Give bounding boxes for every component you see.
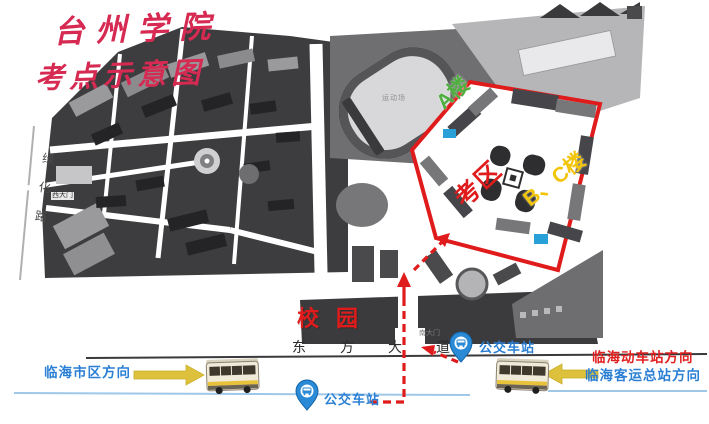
bus-stop-label-bottom: 公交车站 xyxy=(324,393,380,407)
exam-site-map: 台州学院 考点示意图 绿化路 西大门 运动场 南大门 A楼 B、C楼 考区 校园… xyxy=(0,0,709,424)
direction-arrow-left xyxy=(134,365,204,385)
map-title: 台州学院 考点示意图 xyxy=(32,1,223,98)
direction-label-train-station: 临海动车站方向 xyxy=(592,351,694,366)
bus-image-left xyxy=(206,358,259,394)
south-gate-label: 南大门 xyxy=(419,330,440,338)
map-title-line1: 台州学院 xyxy=(52,1,221,52)
west-gate-label: 西大门 xyxy=(51,192,74,200)
bus-stop-pin-bottom xyxy=(296,380,318,410)
bus-stop-label-right: 公交车站 xyxy=(479,341,535,355)
map-title-line2: 考点示意图 xyxy=(34,49,223,98)
bus-image-right xyxy=(496,358,549,394)
stadium-label: 运动场 xyxy=(382,95,406,103)
direction-label-bus-terminal: 临海客运总站方向 xyxy=(585,369,701,384)
campus-label: 校园 xyxy=(297,307,375,331)
road-name-label: 东方大道 xyxy=(292,340,484,355)
direction-label-city: 临海市区方向 xyxy=(44,366,131,381)
